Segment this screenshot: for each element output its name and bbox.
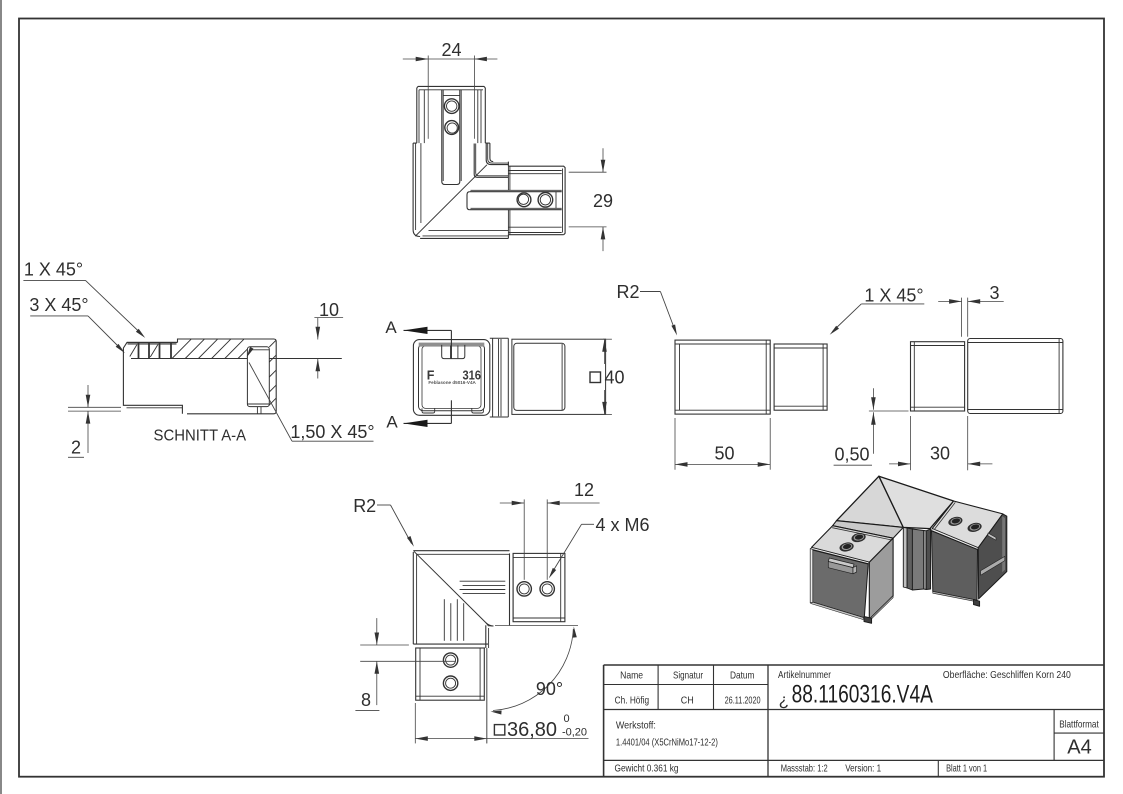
svg-text:8: 8	[361, 690, 371, 710]
svg-text:Version: 1: Version: 1	[845, 762, 881, 774]
svg-text:-0,20: -0,20	[562, 727, 587, 739]
svg-text:1 X 45°: 1 X 45°	[24, 259, 83, 279]
svg-text:Name: Name	[620, 669, 643, 681]
svg-text:Werkstoff:: Werkstoff:	[616, 719, 656, 731]
svg-text:1.4401/04 (X5CrNiMo17-12-2): 1.4401/04 (X5CrNiMo17-12-2)	[616, 737, 718, 749]
svg-text:29: 29	[593, 191, 613, 211]
svg-text:0,50: 0,50	[834, 444, 869, 464]
svg-text:40: 40	[605, 367, 625, 387]
svg-text:1 X 45°: 1 X 45°	[864, 286, 923, 306]
svg-text:1,50 X 45°: 1,50 X 45°	[290, 422, 374, 442]
svg-text:A: A	[385, 318, 397, 337]
svg-text:24: 24	[441, 40, 461, 60]
svg-text:36,80: 36,80	[507, 719, 557, 741]
svg-text:90°: 90°	[536, 679, 563, 699]
svg-text:Blatt 1 von 1: Blatt 1 von 1	[946, 762, 987, 774]
svg-text:Datum: Datum	[730, 669, 755, 681]
svg-text:0: 0	[563, 713, 569, 725]
svg-text:Artikelnummer: Artikelnummer	[778, 669, 831, 681]
svg-text:Feblasone d5016-V4A: Feblasone d5016-V4A	[428, 380, 476, 385]
svg-text:¿: ¿	[779, 691, 789, 710]
svg-text:26.11.2020: 26.11.2020	[725, 695, 761, 707]
svg-text:3: 3	[989, 283, 999, 303]
svg-text:A: A	[386, 413, 398, 432]
svg-text:A4: A4	[1067, 737, 1091, 759]
svg-text:2: 2	[71, 438, 81, 458]
svg-text:50: 50	[714, 444, 734, 464]
svg-text:R2: R2	[353, 496, 376, 516]
svg-text:Massstab: 1:2: Massstab: 1:2	[781, 762, 828, 774]
svg-text:Signatur: Signatur	[673, 669, 703, 681]
svg-text:4 x M6: 4 x M6	[595, 515, 649, 535]
svg-text:Gewicht 0.361 kg: Gewicht 0.361 kg	[615, 763, 679, 775]
svg-text:CH: CH	[681, 695, 694, 707]
svg-text:30: 30	[930, 443, 950, 463]
svg-text:12: 12	[574, 480, 594, 500]
svg-text:SCHNITT A-A: SCHNITT A-A	[154, 428, 247, 445]
svg-text:Ch. Höfig: Ch. Höfig	[615, 695, 650, 707]
svg-text:R2: R2	[616, 282, 639, 302]
svg-text:10: 10	[319, 300, 339, 320]
svg-text:88.1160316.V4A: 88.1160316.V4A	[792, 681, 934, 709]
svg-text:3 X 45°: 3 X 45°	[29, 295, 88, 315]
svg-text:Oberfläche: Geschliffen Korn: Oberfläche: Geschliffen Korn 240	[943, 669, 1071, 681]
svg-text:Blattformat: Blattformat	[1059, 719, 1099, 731]
